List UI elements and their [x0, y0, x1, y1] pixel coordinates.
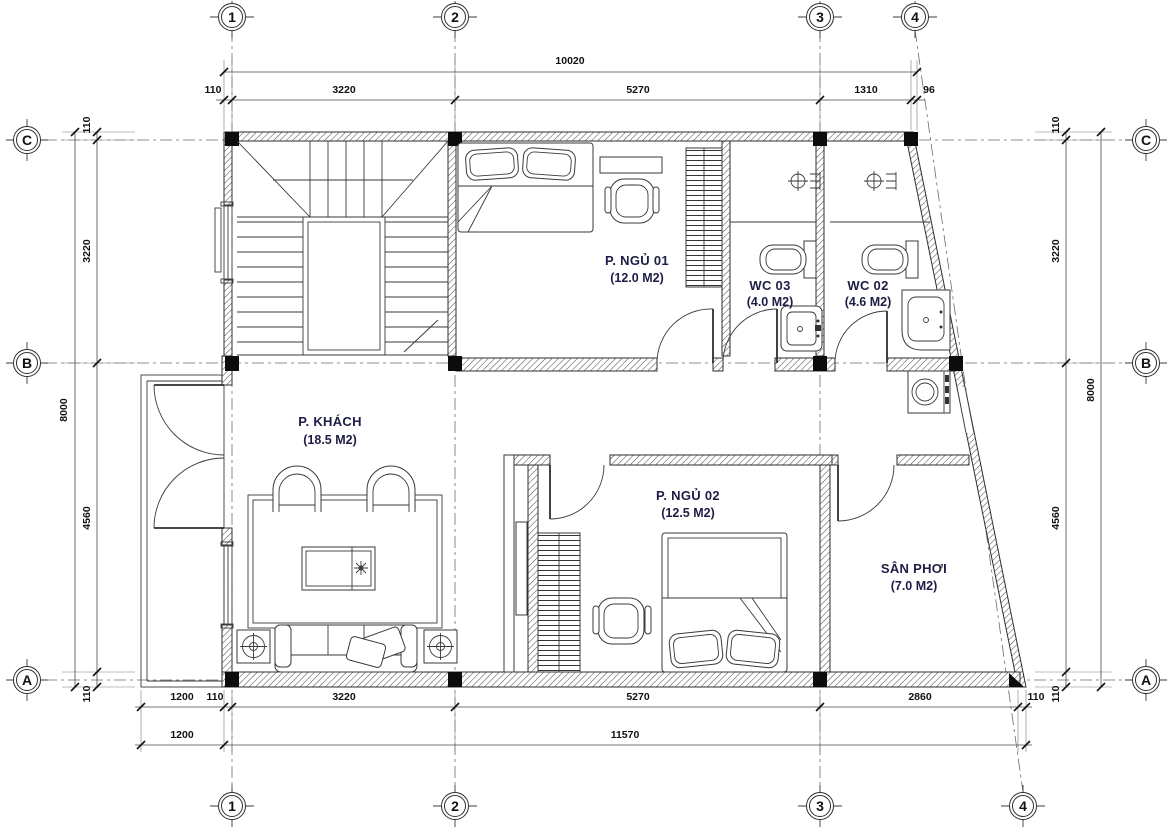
- grid-bubble-B-right: B: [1125, 342, 1167, 384]
- grid-bubble-C-left: C: [6, 119, 48, 161]
- dim-top-110: 110: [205, 84, 222, 96]
- desk-1: [600, 157, 662, 173]
- dim-right-3220: 3220: [1050, 239, 1062, 263]
- armchair: [273, 466, 321, 512]
- door-bedroom-2: [550, 465, 604, 519]
- dimensions-top: 10020 110 3220 5270 1310 96: [205, 55, 935, 130]
- chair-1: [605, 179, 659, 223]
- dim-top-3220: 3220: [332, 84, 356, 96]
- room-area-wc3: (4.0 M2): [747, 295, 794, 309]
- dim-left-4560: 4560: [81, 506, 93, 530]
- dimensions-left: 8000 110 3220 4560 110: [58, 116, 135, 702]
- dim-left-110a: 110: [81, 116, 93, 133]
- room-labels: P. NGỦ 01 (12.0 M2) WC 03 (4.0 M2) WC 02…: [298, 253, 947, 593]
- room-label-wc2: WC 02: [847, 278, 888, 293]
- svg-text:A: A: [22, 672, 32, 688]
- staircase: [237, 141, 448, 355]
- room-area-bedroom-2: (12.5 M2): [661, 506, 715, 520]
- wardrobe-2: [538, 533, 580, 672]
- window-stair-left: [215, 202, 233, 283]
- door-wc2: [835, 311, 887, 363]
- svg-text:C: C: [22, 132, 32, 148]
- toilet-wc3: [760, 241, 816, 278]
- dim-right-110a: 110: [1050, 116, 1062, 133]
- room-label-bedroom-2: P. NGỦ 02: [656, 488, 720, 503]
- room-area-living: (18.5 M2): [303, 433, 357, 447]
- wardrobe-1: [686, 148, 722, 287]
- svg-text:1: 1: [228, 9, 236, 25]
- window-living-left: [221, 542, 233, 628]
- svg-text:2: 2: [451, 798, 459, 814]
- tv-panel: [516, 522, 527, 615]
- svg-text:A: A: [1141, 672, 1151, 688]
- room-area-drying-yard: (7.0 M2): [891, 579, 938, 593]
- plant-table: [424, 630, 457, 663]
- dim-bottom-3220: 3220: [332, 691, 356, 703]
- dim-right-4560: 4560: [1050, 506, 1062, 530]
- dim-bottom-110b: 110: [1028, 691, 1045, 703]
- svg-text:C: C: [1141, 132, 1151, 148]
- door-wc3: [723, 309, 777, 363]
- svg-text:4: 4: [911, 9, 919, 25]
- grid-bubble-4-top: 4: [893, 1, 937, 38]
- wc3-fixtures: [723, 171, 822, 363]
- svg-text:4: 4: [1019, 798, 1027, 814]
- plant-table: [237, 630, 270, 663]
- floor-plan-drawing: P. NGỦ 01 (12.0 M2) WC 03 (4.0 M2) WC 02…: [0, 0, 1173, 830]
- svg-text:3: 3: [816, 798, 824, 814]
- room-area-wc2: (4.6 M2): [845, 295, 892, 309]
- svg-text:B: B: [1141, 355, 1151, 371]
- dim-bottom-5270: 5270: [626, 691, 650, 703]
- dimensions-right: 110 3220 4560 110 8000: [1035, 116, 1112, 702]
- room-label-wc3: WC 03: [749, 278, 790, 293]
- bedroom-1-furniture: [458, 143, 722, 287]
- svg-text:3: 3: [816, 9, 824, 25]
- wall-face-strip: [504, 455, 514, 672]
- washing-machine: [908, 371, 950, 413]
- svg-text:1: 1: [228, 798, 236, 814]
- room-area-bedroom-1: (12.0 M2): [610, 271, 664, 285]
- door-bedroom-1: [657, 309, 713, 363]
- balcony-outline: [141, 375, 224, 687]
- grid-bubble-A-left: A: [6, 659, 48, 701]
- grid-bubble-C-right: C: [1125, 119, 1167, 161]
- grid-bubble-3-bottom: 3: [798, 785, 842, 827]
- grid-bubble-3-top: 3: [798, 1, 842, 38]
- floor-plan-sheet: P. NGỦ 01 (12.0 M2) WC 03 (4.0 M2) WC 02…: [0, 0, 1173, 830]
- shower-mixer-icon: [788, 171, 820, 191]
- dim-bottom-1200b: 1200: [170, 729, 194, 741]
- grid-bubbles: 1 2 3 4 1 2 3 4 C: [6, 1, 1167, 827]
- armchair: [367, 466, 415, 512]
- grid-bubble-2-bottom: 2: [433, 785, 477, 827]
- dim-right-110b: 110: [1050, 685, 1062, 702]
- dim-bottom-2860: 2860: [908, 691, 932, 703]
- dim-bottom-110a: 110: [207, 691, 224, 703]
- bed-double-2: [662, 533, 787, 672]
- grid-bubble-1-bottom: 1: [210, 785, 254, 827]
- dim-top-96: 96: [923, 84, 935, 96]
- bedroom-2-furniture: [504, 455, 787, 672]
- room-label-drying-yard: SÂN PHƠI: [881, 561, 947, 576]
- sofa: [275, 625, 417, 672]
- dim-left-110b: 110: [81, 685, 93, 702]
- dim-bottom-11570: 11570: [611, 729, 640, 741]
- room-label-living: P. KHÁCH: [298, 414, 362, 429]
- grid-bubble-1-top: 1: [210, 1, 254, 38]
- sink-wc2: [902, 290, 950, 350]
- window-slant-wall: [957, 387, 974, 433]
- dim-right-8000: 8000: [1085, 378, 1097, 402]
- room-label-bedroom-1: P. NGỦ 01: [605, 253, 669, 268]
- sink-wc3: [781, 306, 822, 351]
- dim-top-total: 10020: [555, 55, 584, 67]
- dim-top-1310: 1310: [854, 84, 878, 96]
- dim-left-3220: 3220: [81, 239, 93, 263]
- shower-mixer-icon: [864, 171, 896, 191]
- chair-2: [593, 598, 651, 644]
- door-drying-yard: [838, 465, 894, 521]
- dim-left-8000: 8000: [58, 398, 70, 422]
- dim-top-5270: 5270: [626, 84, 650, 96]
- grid-bubble-2-top: 2: [433, 1, 477, 38]
- dim-bottom-1200: 1200: [170, 691, 194, 703]
- dimensions-bottom: 1200 110 3220 5270 2860 110 1200 11570: [135, 690, 1045, 752]
- svg-text:B: B: [22, 355, 32, 371]
- double-door-living: [154, 385, 224, 528]
- toilet-wc2: [862, 241, 918, 278]
- grid-bubble-B-left: B: [6, 342, 48, 384]
- grid-bubble-4-bottom: 4: [1001, 785, 1045, 827]
- bed-double-1: [458, 143, 593, 232]
- grid-bubble-A-right: A: [1125, 659, 1167, 701]
- svg-text:2: 2: [451, 9, 459, 25]
- coffee-table: [302, 547, 375, 590]
- plant-icon: [354, 561, 368, 575]
